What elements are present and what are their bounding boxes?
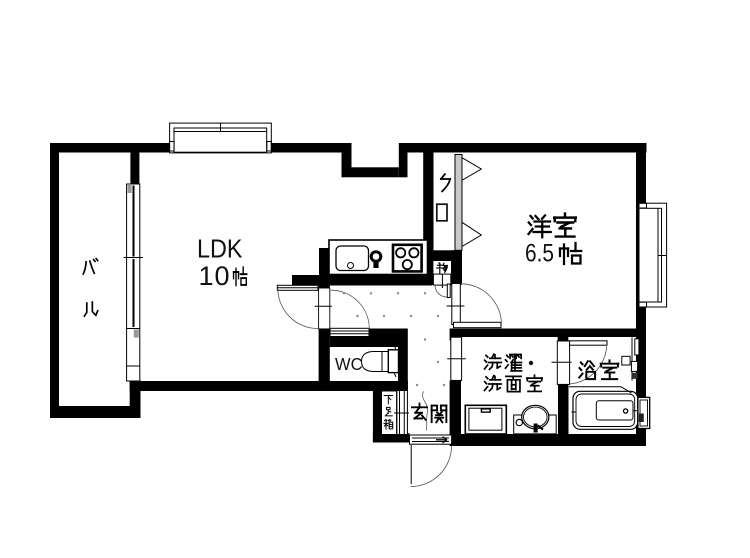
svg-text:10: 10 [199, 261, 230, 291]
svg-text:WC: WC [335, 354, 363, 374]
svg-text:6.5: 6.5 [525, 239, 554, 267]
svg-text:LDK: LDK [197, 233, 243, 263]
